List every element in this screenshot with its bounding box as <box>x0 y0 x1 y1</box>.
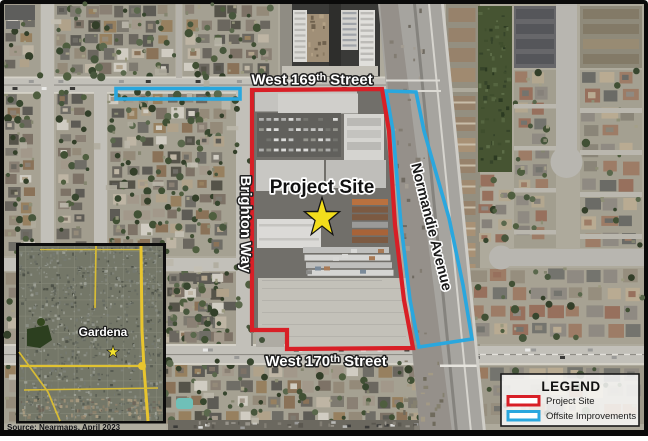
svg-text:Project Site: Project Site <box>546 396 595 407</box>
svg-text:Brighton Way: Brighton Way <box>237 176 254 274</box>
svg-text:Gardena: Gardena <box>79 325 128 339</box>
svg-text:West 169th Street: West 169th Street <box>251 72 372 89</box>
svg-text:Offsite Improvements: Offsite Improvements <box>546 411 636 422</box>
svg-text:LEGEND: LEGEND <box>541 379 600 394</box>
svg-text:West 170th Street: West 170th Street <box>265 353 386 370</box>
svg-text:Project Site: Project Site <box>270 177 375 198</box>
